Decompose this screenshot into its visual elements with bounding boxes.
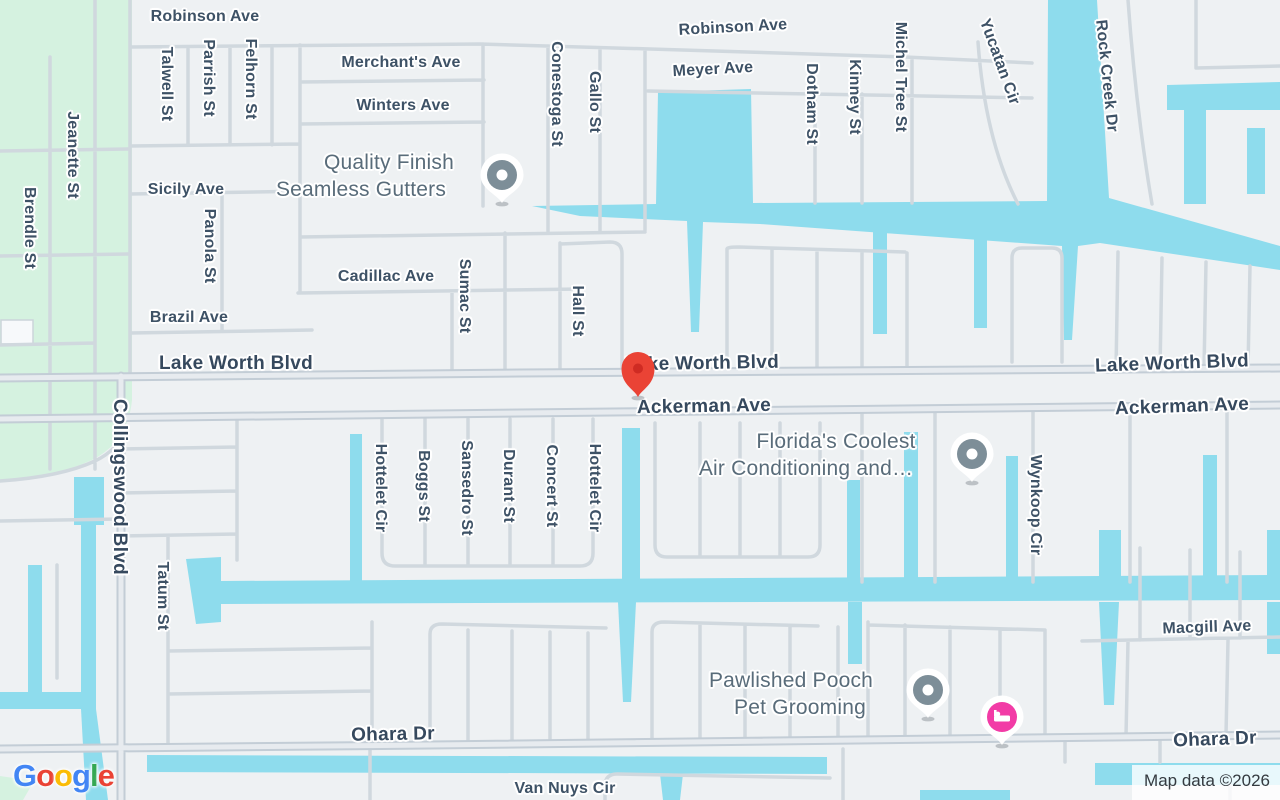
google-logo-letter: g [72,758,90,793]
poi-pin[interactable] [937,420,1007,490]
hotel-poi-pin[interactable] [967,683,1037,753]
google-logo-letter: e [98,758,114,793]
map-canvas[interactable]: Robinson AveRobinson AveMerchant's AveWi… [0,0,1280,800]
google-logo-letter: o [36,758,54,793]
google-logo-letter: G [13,758,36,793]
google-logo-letter: o [54,758,72,793]
poi-pin[interactable] [893,656,963,726]
poi-pin[interactable] [467,141,537,211]
google-logo[interactable]: Google [13,758,114,794]
building-footprint [1,320,33,344]
destination-marker-pin[interactable] [603,335,673,405]
google-logo-letter: l [90,758,98,793]
map-attribution: Map data ©2026 [1132,765,1280,800]
